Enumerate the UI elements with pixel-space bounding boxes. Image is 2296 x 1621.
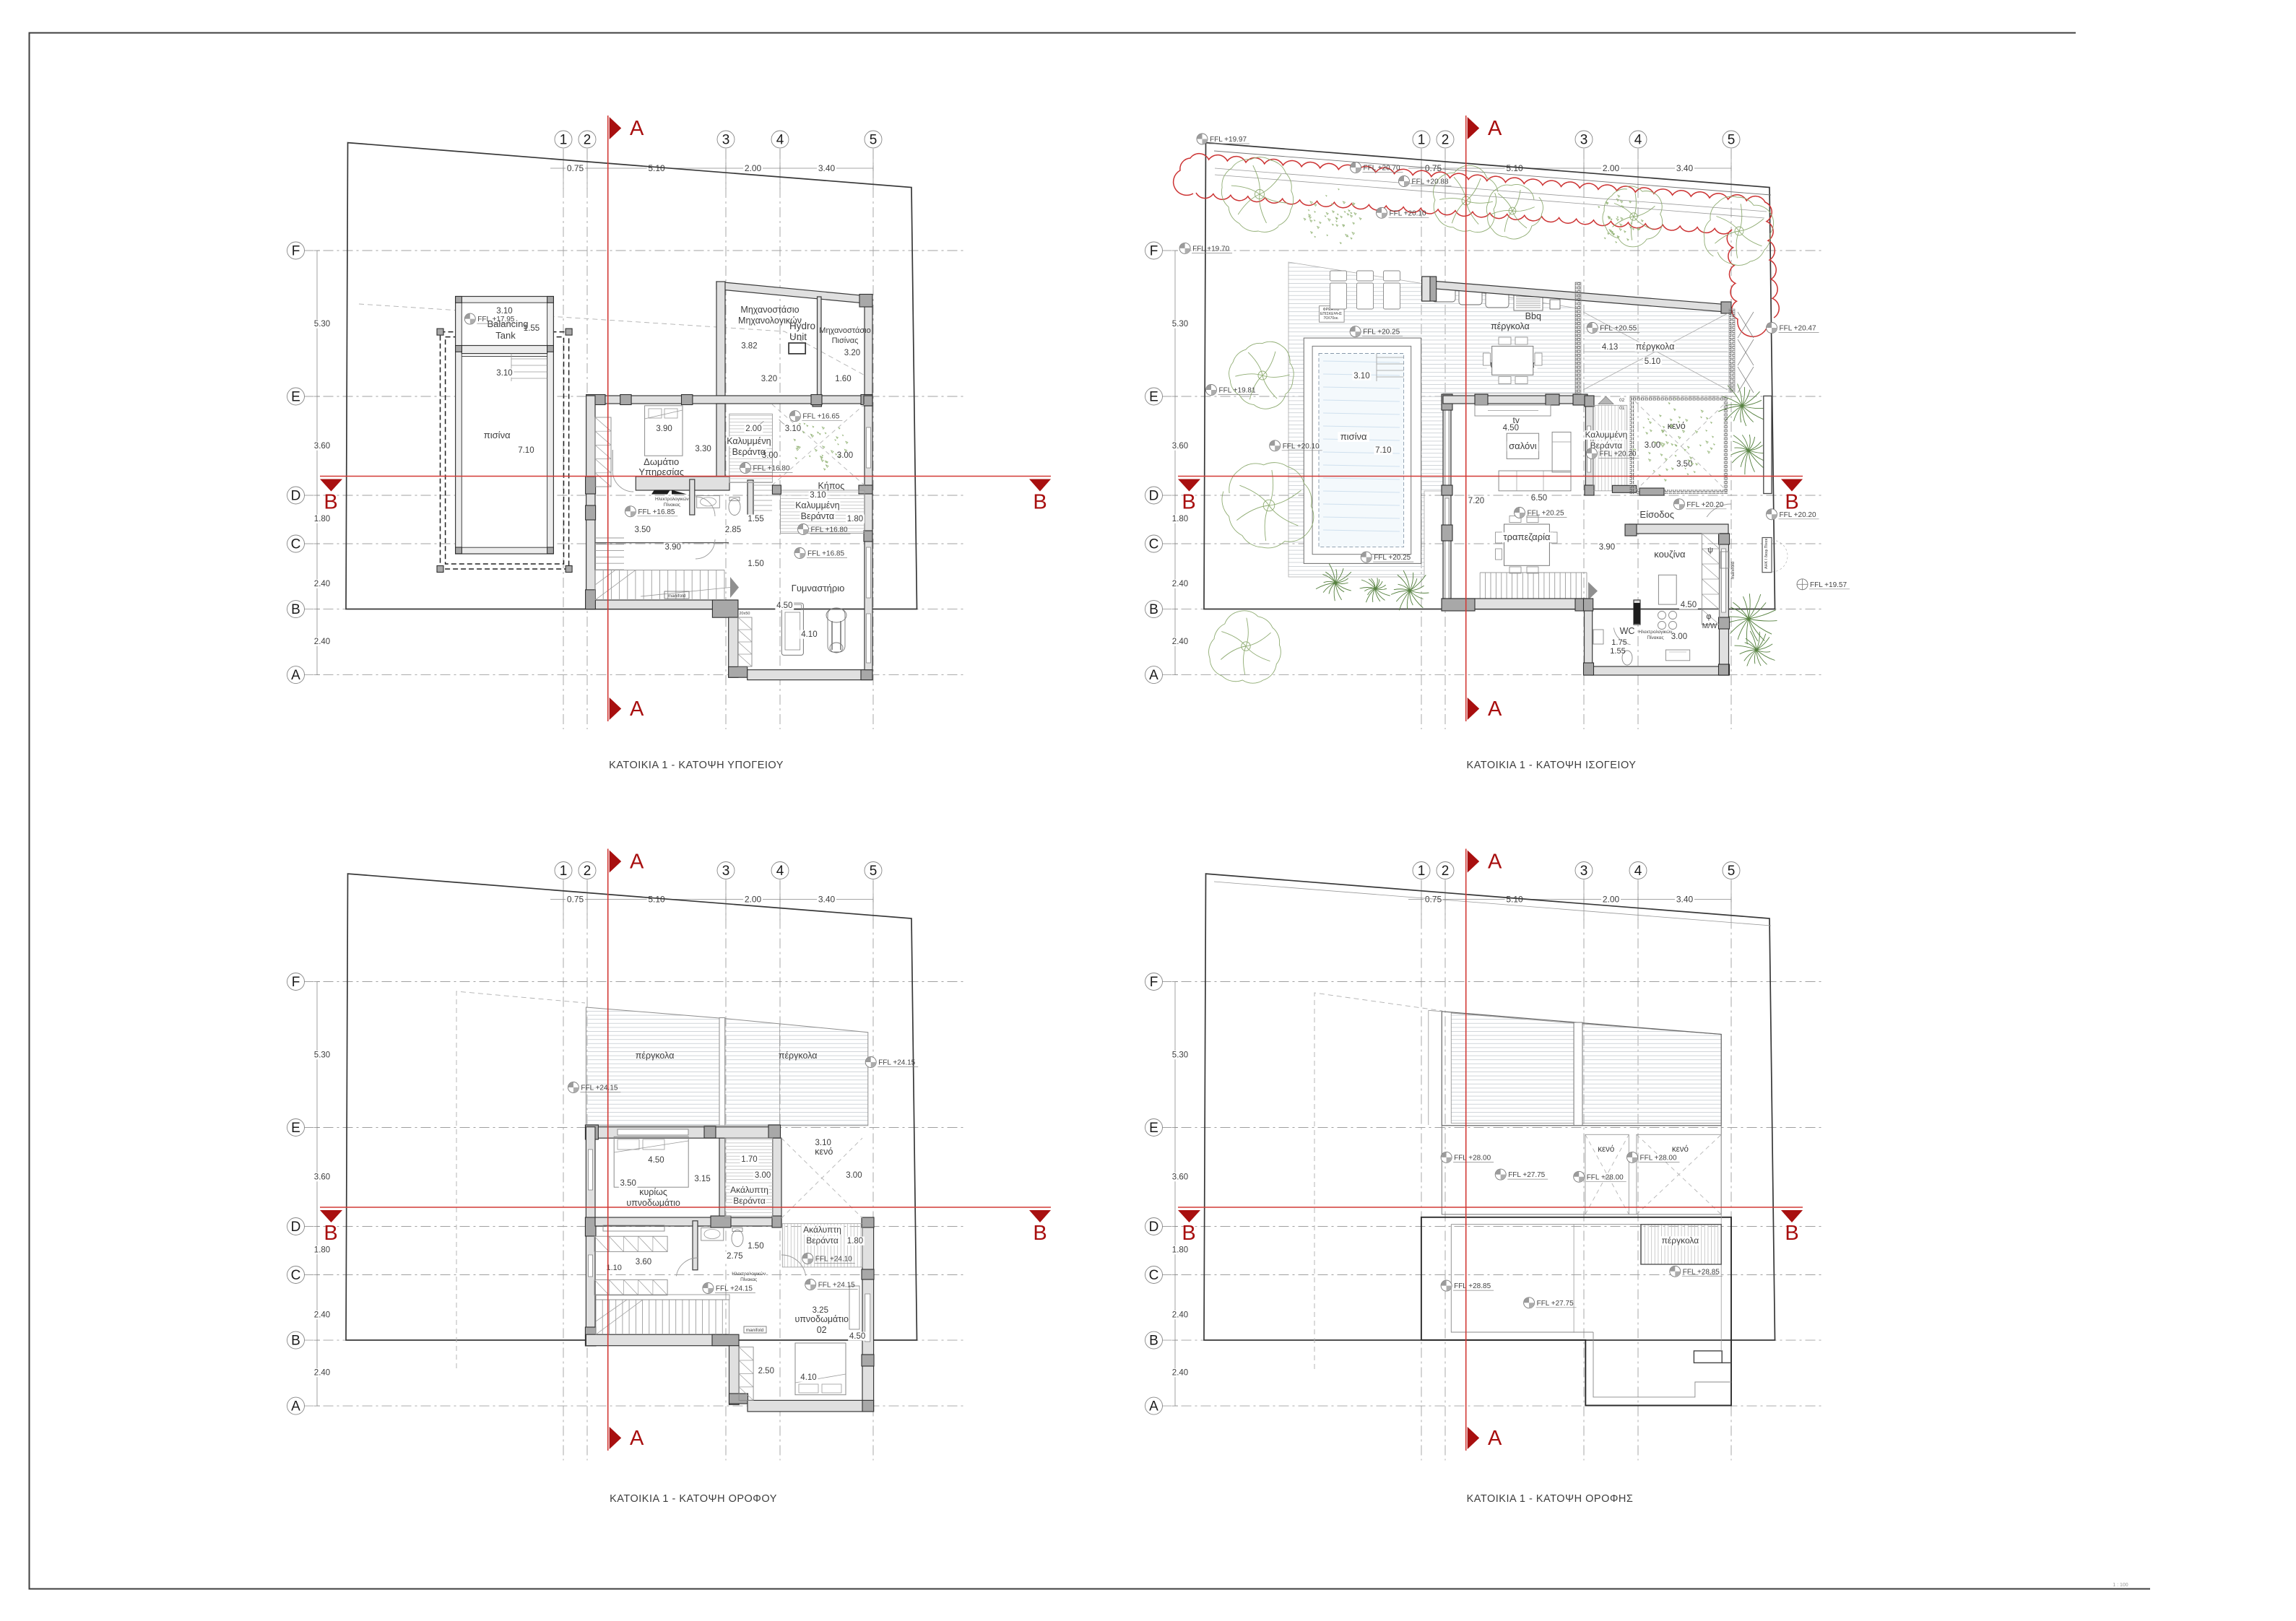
svg-text:A: A (630, 851, 644, 874)
svg-text:4: 4 (1634, 864, 1642, 879)
svg-text:Δωμάτιο: Δωμάτιο (644, 456, 679, 467)
svg-text:ΚΑΤΟΙΚΙΑ 1 - ΚΑΤΟΨΗ ΟΡΟΦΟΥ: ΚΑΤΟΙΚΙΑ 1 - ΚΑΤΟΨΗ ΟΡΟΦΟΥ (610, 1493, 777, 1505)
svg-text:3.10: 3.10 (1353, 372, 1369, 381)
svg-text:κενό: κενό (815, 1147, 833, 1157)
svg-text:2.00: 2.00 (745, 895, 762, 905)
svg-text:Hydro: Hydro (789, 321, 815, 331)
svg-text:A: A (291, 1399, 300, 1414)
svg-text:Unit: Unit (789, 331, 807, 342)
svg-text:2.00: 2.00 (745, 425, 761, 433)
svg-text:φ: φ (1706, 612, 1711, 621)
svg-text:4: 4 (1634, 133, 1642, 148)
svg-text:2.40: 2.40 (1172, 1369, 1188, 1378)
svg-text:ΚΑΤΟΙΚΙΑ 1 - ΚΑΤΟΨΗ ΟΡΟΦΗΣ: ΚΑΤΟΙΚΙΑ 1 - ΚΑΤΟΨΗ ΟΡΟΦΗΣ (1467, 1493, 1634, 1505)
svg-text:B: B (291, 602, 300, 617)
svg-text:3.00: 3.00 (1645, 441, 1660, 450)
svg-text:A: A (1488, 697, 1502, 721)
svg-text:Μηχανοστάσιο: Μηχανοστάσιο (819, 326, 870, 335)
svg-text:κενό: κενό (1672, 1145, 1689, 1154)
svg-text:ΑΗΚ Ι διαφ.Πίνακ.: ΑΗΚ Ι διαφ.Πίνακ. (1764, 537, 1769, 569)
svg-text:4.50: 4.50 (1503, 424, 1519, 433)
svg-text:πέργκολα: πέργκολα (1491, 321, 1530, 331)
svg-text:A: A (630, 1427, 644, 1450)
svg-text:3.40: 3.40 (1676, 163, 1694, 173)
svg-text:B: B (1033, 491, 1047, 514)
svg-text:1.10: 1.10 (606, 1264, 621, 1272)
svg-text:3.20: 3.20 (844, 349, 860, 357)
svg-text:FFL +28.00: FFL +28.00 (1640, 1154, 1677, 1162)
svg-text:σαλόνι: σαλόνι (1509, 440, 1537, 451)
svg-text:5: 5 (870, 864, 878, 879)
svg-text:3.40: 3.40 (818, 163, 836, 173)
svg-text:3.10: 3.10 (810, 491, 826, 500)
svg-text:1.80: 1.80 (1172, 515, 1188, 523)
svg-text:3.40: 3.40 (818, 895, 836, 905)
svg-text:2.00: 2.00 (1603, 895, 1620, 905)
svg-text:5.30: 5.30 (314, 1051, 330, 1060)
svg-text:πισίνα: πισίνα (1340, 431, 1367, 442)
svg-text:κυρίως: κυρίως (639, 1187, 667, 1197)
svg-text:3.90: 3.90 (656, 425, 672, 433)
svg-text:1 : 100: 1 : 100 (2113, 1583, 2128, 1588)
svg-text:Βεράντα: Βεράντα (733, 1196, 766, 1206)
svg-text:FFL +28.00: FFL +28.00 (1587, 1173, 1624, 1181)
svg-text:E: E (291, 1121, 300, 1136)
svg-text:3.50: 3.50 (635, 526, 651, 534)
svg-text:WC: WC (1620, 626, 1635, 636)
svg-text:3: 3 (722, 864, 730, 879)
svg-text:2: 2 (1442, 864, 1450, 879)
svg-text:4.50: 4.50 (776, 601, 792, 610)
svg-text:A: A (630, 117, 644, 140)
svg-text:FFL +20.10: FFL +20.10 (1283, 443, 1320, 451)
svg-text:7.20: 7.20 (1468, 497, 1484, 505)
svg-text:A: A (1149, 1399, 1158, 1414)
svg-text:2.40: 2.40 (314, 1311, 330, 1320)
svg-text:3.10: 3.10 (496, 369, 512, 378)
svg-text:1.80: 1.80 (314, 515, 330, 523)
svg-text:2.85: 2.85 (725, 526, 741, 534)
svg-text:Καλυμμένη: Καλυμμένη (727, 436, 771, 446)
svg-text:3.20: 3.20 (761, 375, 777, 383)
svg-text:2.40: 2.40 (1172, 638, 1188, 646)
svg-text:5.10: 5.10 (1645, 357, 1660, 366)
svg-text:FFL +19.81: FFL +19.81 (1219, 387, 1256, 395)
svg-text:Ηλεκτρολογικών: Ηλεκτρολογικών (732, 1271, 766, 1277)
svg-text:FFL +24.15: FFL +24.15 (716, 1285, 753, 1293)
svg-text:5.30: 5.30 (314, 320, 330, 329)
svg-text:Πίνακας: Πίνακας (1647, 635, 1663, 640)
svg-text:2.40: 2.40 (314, 638, 330, 646)
svg-text:A: A (1488, 851, 1502, 874)
svg-text:B: B (291, 1334, 300, 1349)
svg-text:4.13: 4.13 (1602, 343, 1618, 352)
svg-text:3.00: 3.00 (837, 451, 853, 460)
svg-text:20x50: 20x50 (740, 612, 750, 616)
svg-text:FFL +20.25: FFL +20.25 (1363, 329, 1400, 336)
svg-text:B: B (324, 1222, 337, 1245)
svg-text:Γυμναστήριο: Γυμναστήριο (792, 583, 845, 594)
svg-text:Tank: Tank (495, 330, 516, 341)
svg-text:3: 3 (722, 133, 730, 148)
svg-text:7.10: 7.10 (518, 446, 534, 455)
svg-text:3.25: 3.25 (813, 1306, 828, 1315)
svg-text:70Χ70εκ.: 70Χ70εκ. (1323, 316, 1338, 321)
svg-text:FFL +20.25: FFL +20.25 (1528, 510, 1564, 518)
svg-text:2.40: 2.40 (314, 580, 330, 588)
svg-text:Κήπος: Κήπος (818, 481, 845, 491)
svg-text:FFL +28.00: FFL +28.00 (1454, 1154, 1491, 1162)
svg-text:FFL +24.10: FFL +24.10 (815, 1256, 852, 1264)
svg-text:A: A (1488, 1427, 1502, 1450)
svg-text:1.80: 1.80 (847, 1237, 863, 1246)
svg-text:5: 5 (1728, 133, 1736, 148)
svg-text:FFL +24.15: FFL +24.15 (581, 1085, 618, 1092)
svg-text:FFL +16.80: FFL +16.80 (811, 526, 848, 534)
svg-text:E: E (1149, 390, 1158, 405)
svg-text:3.60: 3.60 (314, 1173, 330, 1182)
svg-text:FFL +20.20: FFL +20.20 (1686, 501, 1723, 509)
svg-text:2: 2 (1442, 133, 1450, 148)
svg-text:3: 3 (1580, 133, 1588, 148)
svg-text:3.10: 3.10 (496, 307, 512, 316)
svg-text:2.75: 2.75 (727, 1252, 742, 1261)
svg-text:FFL +20.25: FFL +20.25 (1374, 554, 1411, 562)
svg-text:Ακάλυπτη: Ακάλυπτη (803, 1225, 841, 1235)
svg-text:3.15: 3.15 (694, 1175, 710, 1183)
svg-text:Είσοδος: Είσοδος (1639, 509, 1674, 520)
svg-text:1: 1 (1418, 133, 1426, 148)
svg-text:1.55: 1.55 (748, 515, 763, 523)
svg-text:FFL +27.75: FFL +27.75 (1508, 1171, 1545, 1179)
svg-text:D: D (291, 1220, 301, 1235)
svg-text:5.30: 5.30 (1172, 320, 1188, 329)
svg-text:3: 3 (1580, 864, 1588, 879)
svg-text:πέργκολα: πέργκολα (1636, 342, 1675, 352)
svg-text:1.80: 1.80 (1172, 1246, 1188, 1255)
svg-text:5.30: 5.30 (1172, 1051, 1188, 1060)
svg-text:πέργκολα: πέργκολα (636, 1051, 675, 1061)
svg-text:B: B (1182, 491, 1195, 514)
svg-text:ΚΑΤΟΙΚΙΑ 1 - ΚΑΤΟΨΗ ΙΣΟΓΕΙΟΥ: ΚΑΤΟΙΚΙΑ 1 - ΚΑΤΟΨΗ ΙΣΟΓΕΙΟΥ (1467, 760, 1637, 771)
svg-text:FFL +28.85: FFL +28.85 (1683, 1268, 1720, 1276)
svg-text:Ακάλυπτη: Ακάλυπτη (730, 1185, 768, 1195)
svg-text:1.55: 1.55 (524, 324, 540, 333)
svg-text:F: F (1150, 244, 1158, 259)
svg-text:FFL +20.10: FFL +20.10 (1390, 209, 1426, 217)
svg-text:C: C (291, 1268, 301, 1283)
svg-text:Bbq: Bbq (1525, 311, 1541, 321)
svg-text:B: B (1149, 602, 1158, 617)
svg-text:Πισίνας: Πισίνας (832, 336, 859, 345)
svg-text:2.00: 2.00 (1603, 163, 1620, 173)
svg-text:υπνοδωμάτιο: υπνοδωμάτιο (626, 1198, 680, 1208)
svg-text:4: 4 (776, 864, 784, 879)
svg-text:3.60: 3.60 (636, 1258, 651, 1266)
svg-text:1: 1 (1418, 864, 1426, 879)
svg-text:7.10: 7.10 (1375, 446, 1391, 455)
svg-text:FFL +16.65: FFL +16.65 (802, 413, 839, 421)
svg-text:FFL +16.85: FFL +16.85 (807, 550, 844, 558)
svg-text:E: E (1149, 1121, 1158, 1136)
svg-text:ψ: ψ (1707, 546, 1713, 555)
svg-text:6.50: 6.50 (1531, 494, 1547, 503)
svg-text:2: 2 (584, 133, 592, 148)
svg-text:FFL +16.80: FFL +16.80 (753, 465, 790, 473)
svg-text:B: B (1182, 1222, 1195, 1245)
svg-text:3.50: 3.50 (620, 1179, 636, 1188)
svg-text:1.70: 1.70 (741, 1155, 757, 1164)
svg-text:C: C (1149, 537, 1159, 552)
svg-text:FFL +20.70: FFL +20.70 (1364, 165, 1400, 173)
svg-text:Μηχανοστάσιο: Μηχανοστάσιο (740, 305, 799, 315)
svg-text:Καλυμμένη: Καλυμμένη (1585, 430, 1627, 440)
svg-text:4.50: 4.50 (1681, 601, 1697, 609)
svg-text:FFL +20.47: FFL +20.47 (1780, 325, 1816, 333)
svg-text:4.50: 4.50 (849, 1332, 865, 1341)
svg-text:3.10: 3.10 (785, 425, 801, 433)
svg-text:FFL +17.95: FFL +17.95 (477, 316, 514, 323)
svg-text:πέργκολα: πέργκολα (1662, 1235, 1699, 1246)
svg-text:02: 02 (1619, 398, 1625, 403)
svg-text:F: F (292, 975, 300, 990)
svg-text:manifold: manifold (1730, 561, 1736, 579)
svg-text:B: B (324, 491, 337, 514)
svg-text:A: A (630, 697, 644, 721)
svg-text:B: B (1033, 1222, 1047, 1245)
svg-text:E: E (291, 390, 300, 405)
svg-text:FFL +20.88: FFL +20.88 (1412, 178, 1449, 186)
svg-text:FFL +19.70: FFL +19.70 (1192, 245, 1229, 253)
svg-text:κενό: κενό (1598, 1145, 1614, 1154)
svg-text:D: D (291, 489, 301, 504)
svg-text:F: F (1150, 975, 1158, 990)
svg-text:FFL +27.75: FFL +27.75 (1537, 1300, 1574, 1308)
svg-text:0.75: 0.75 (567, 163, 584, 173)
svg-text:manifold: manifold (668, 594, 686, 599)
svg-text:1.80: 1.80 (847, 515, 863, 523)
svg-text:3.00: 3.00 (755, 1171, 771, 1180)
svg-text:Βεράντα: Βεράντα (801, 511, 834, 521)
svg-text:0.75: 0.75 (567, 895, 584, 905)
svg-text:κουζίνα: κουζίνα (1654, 549, 1686, 560)
svg-text:Καλυμμένη: Καλυμμένη (795, 500, 839, 510)
svg-text:2.40: 2.40 (1172, 580, 1188, 588)
svg-text:FFL +28.85: FFL +28.85 (1454, 1282, 1491, 1290)
svg-text:D: D (1149, 489, 1159, 504)
svg-text:A: A (1149, 668, 1158, 683)
svg-text:FFL +19.97: FFL +19.97 (1210, 136, 1247, 144)
svg-text:3.00: 3.00 (846, 1171, 862, 1180)
svg-text:B: B (1785, 1222, 1798, 1245)
svg-text:3.00: 3.00 (1671, 633, 1687, 641)
svg-text:2.50: 2.50 (758, 1367, 774, 1376)
svg-text:5: 5 (870, 133, 878, 148)
svg-text:02: 02 (817, 1325, 827, 1335)
svg-text:3.60: 3.60 (1172, 1173, 1188, 1182)
svg-text:4: 4 (776, 133, 784, 148)
svg-text:3.90: 3.90 (1599, 543, 1615, 552)
svg-text:5: 5 (1728, 864, 1736, 879)
svg-text:Βεράντα: Βεράντα (732, 447, 766, 457)
svg-text:1.50: 1.50 (748, 1242, 763, 1251)
svg-text:FFL +19.57: FFL +19.57 (1810, 581, 1847, 589)
svg-text:2.40: 2.40 (1172, 1311, 1188, 1320)
svg-text:2: 2 (584, 864, 592, 879)
svg-text:A: A (291, 668, 300, 683)
svg-text:1.80: 1.80 (314, 1246, 330, 1255)
svg-text:2.40: 2.40 (314, 1369, 330, 1378)
svg-text:M/W: M/W (1702, 622, 1717, 630)
svg-text:Πίνακας: Πίνακας (664, 502, 680, 508)
svg-text:3.90: 3.90 (665, 543, 681, 552)
svg-text:τραπεζαρία: τραπεζαρία (1504, 531, 1551, 542)
svg-text:4.50: 4.50 (648, 1156, 664, 1165)
svg-text:manifold: manifold (746, 1328, 764, 1333)
svg-text:Πίνακας: Πίνακας (740, 1277, 757, 1282)
svg-text:3.30: 3.30 (695, 445, 711, 453)
svg-text:01: 01 (1619, 406, 1625, 411)
svg-text:3.00: 3.00 (762, 451, 778, 460)
svg-text:Ηλεκτρολογικών: Ηλεκτρολογικών (655, 496, 689, 502)
svg-text:C: C (1149, 1268, 1159, 1283)
svg-text:1.50: 1.50 (748, 560, 763, 568)
svg-text:2.00: 2.00 (745, 163, 762, 173)
svg-text:3.60: 3.60 (314, 442, 330, 451)
svg-text:A: A (1488, 117, 1502, 140)
svg-text:Ηλεκτρολογικών: Ηλεκτρολογικών (1639, 629, 1673, 635)
svg-text:FFL +24.15: FFL +24.15 (818, 1282, 855, 1290)
svg-text:FFL +24.15: FFL +24.15 (878, 1059, 915, 1067)
svg-text:4.10: 4.10 (801, 630, 817, 639)
svg-text:1: 1 (560, 133, 568, 148)
svg-text:κενό: κενό (1668, 421, 1686, 431)
svg-text:F: F (292, 244, 300, 259)
svg-text:FFL +20.55: FFL +20.55 (1600, 325, 1637, 333)
svg-text:πισίνα: πισίνα (484, 430, 511, 440)
svg-text:3.60: 3.60 (1172, 442, 1188, 451)
svg-text:FFL +16.85: FFL +16.85 (638, 508, 675, 516)
svg-text:1: 1 (560, 864, 568, 879)
svg-text:B: B (1149, 1334, 1158, 1349)
svg-text:1.60: 1.60 (835, 375, 851, 383)
svg-text:B: B (1785, 491, 1798, 514)
svg-text:C: C (291, 537, 301, 552)
svg-text:D: D (1149, 1220, 1159, 1235)
svg-text:3.82: 3.82 (741, 342, 757, 350)
svg-text:ΚΑΤΟΙΚΙΑ 1 - ΚΑΤΟΨΗ ΥΠΟΓΕΙΟΥ: ΚΑΤΟΙΚΙΑ 1 - ΚΑΤΟΨΗ ΥΠΟΓΕΙΟΥ (609, 760, 784, 771)
svg-text:Βεράντα: Βεράντα (806, 1235, 839, 1246)
svg-text:υπνοδωμάτιο: υπνοδωμάτιο (794, 1314, 849, 1324)
svg-text:πέργκολα: πέργκολα (779, 1051, 818, 1061)
svg-text:3.40: 3.40 (1676, 895, 1694, 905)
svg-text:4.10: 4.10 (800, 1373, 816, 1382)
svg-text:1.55: 1.55 (1610, 647, 1625, 656)
